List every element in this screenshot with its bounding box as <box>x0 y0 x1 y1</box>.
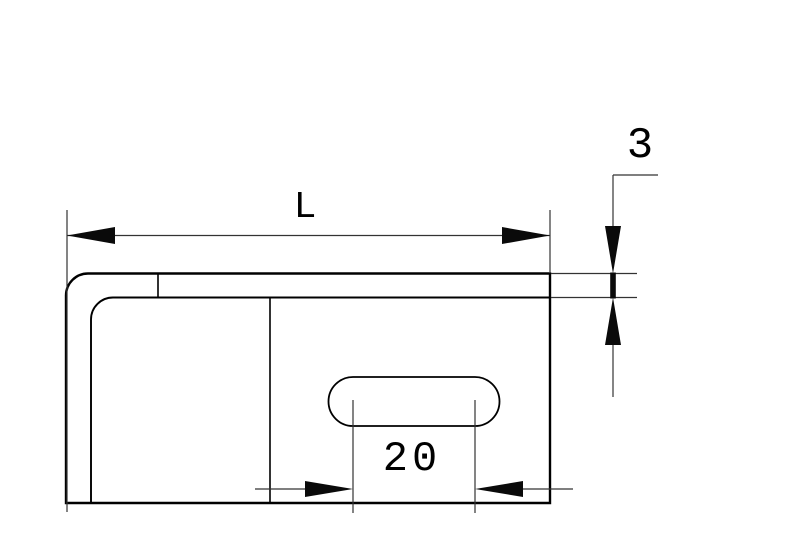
part-inner-edge <box>91 298 550 504</box>
slot-arrowhead-left <box>305 481 353 497</box>
length-arrowhead-right <box>502 227 550 244</box>
slot-cutout <box>329 377 500 426</box>
slot-dimension-label: 20 <box>383 435 441 483</box>
part-outer-outline <box>66 274 550 504</box>
dimension-thickness: 3 <box>551 121 658 397</box>
slot-arrowhead-right <box>475 481 523 497</box>
thickness-stem-bar <box>610 273 616 299</box>
dimension-slot-width: 20 <box>255 400 573 513</box>
thickness-dimension-label: 3 <box>627 121 653 171</box>
dimension-length: L <box>67 186 550 512</box>
bracket-technical-drawing: L 3 20 <box>0 0 804 557</box>
length-dimension-label: L <box>294 186 317 229</box>
thickness-arrowhead-down <box>605 226 621 274</box>
length-arrowhead-left <box>67 227 115 244</box>
thickness-arrowhead-up <box>605 298 621 346</box>
part-geometry <box>66 274 550 504</box>
drawing-page: L 3 20 <box>0 0 804 557</box>
